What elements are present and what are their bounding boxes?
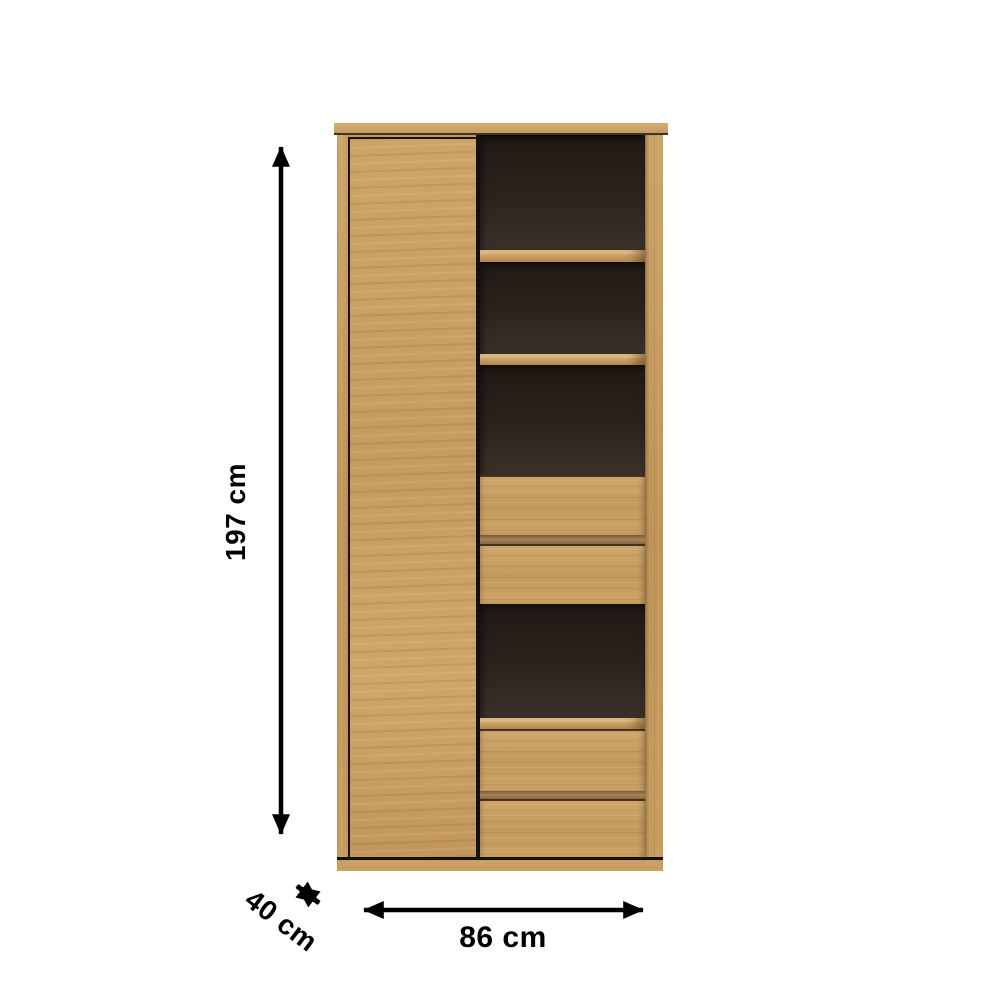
depth-label: 40 cm	[227, 875, 334, 967]
product-dimension-diagram: 197 cm 86 cm 40 cm	[0, 0, 1000, 1000]
height-label: 197 cm	[220, 452, 252, 572]
shelf-board-2	[480, 354, 645, 365]
drawer-2	[480, 544, 645, 604]
width-label: 86 cm	[443, 922, 563, 954]
cabinet-base	[337, 857, 663, 871]
shelf-and-drawer-column	[480, 135, 645, 860]
open-shelf-4	[480, 604, 645, 718]
cabinet-body	[337, 135, 663, 868]
drawer-4	[480, 799, 645, 860]
drawer-divider-1	[480, 535, 645, 544]
drawer-3	[480, 729, 645, 791]
open-shelf-3	[480, 365, 645, 475]
open-shelf-1	[480, 135, 645, 250]
cabinet	[334, 123, 668, 868]
drawer-1	[480, 475, 645, 535]
open-shelf-2	[480, 262, 645, 354]
shelf-board-1	[480, 250, 645, 262]
cabinet-right-frame	[645, 135, 663, 868]
drawer-divider-2	[480, 791, 645, 799]
cabinet-left-frame	[337, 135, 348, 868]
depth-arrow	[297, 886, 319, 903]
cabinet-top-panel	[334, 123, 668, 133]
cabinet-door	[348, 137, 478, 860]
drawer-unit-top-edge	[480, 718, 645, 729]
